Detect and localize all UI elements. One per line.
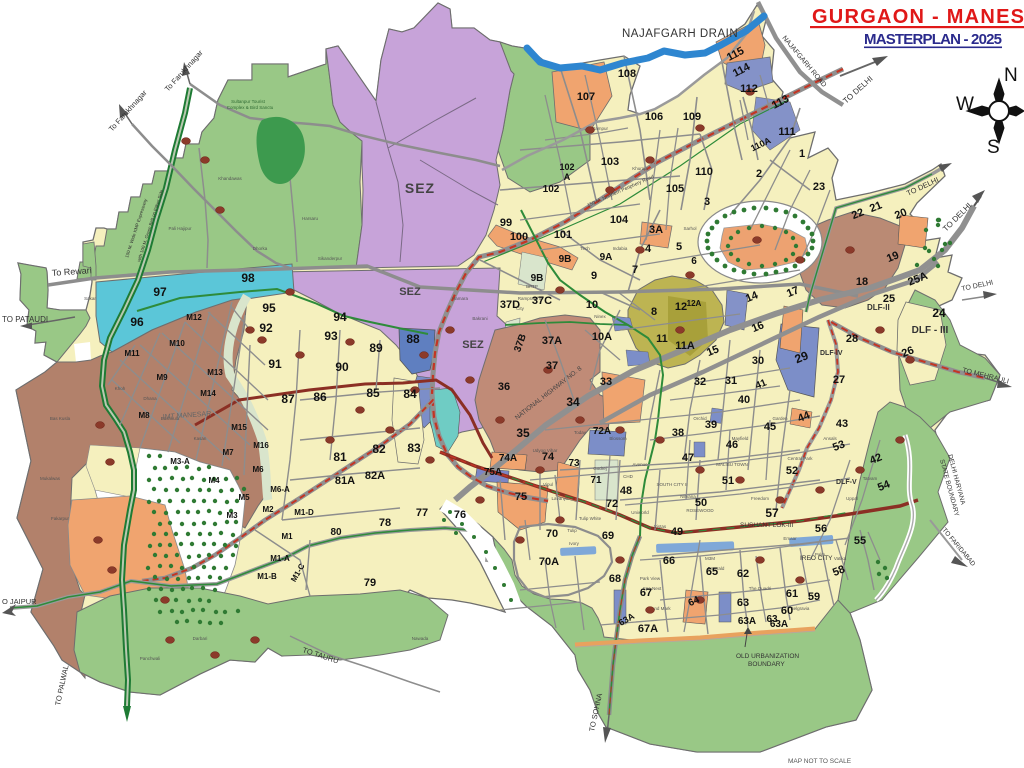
svg-text:M11: M11 [124, 349, 140, 358]
svg-text:8: 8 [651, 306, 657, 318]
svg-text:37A: 37A [542, 335, 562, 347]
svg-text:10A: 10A [592, 331, 612, 343]
svg-text:BPTP: BPTP [526, 284, 538, 289]
svg-text:M1-D: M1-D [294, 508, 314, 517]
svg-text:69: 69 [602, 530, 614, 542]
svg-text:23: 23 [813, 181, 825, 193]
svg-text:A: A [564, 172, 571, 182]
svg-text:M1-B: M1-B [257, 572, 277, 581]
svg-text:111: 111 [778, 126, 795, 138]
svg-text:Tulip: Tulip [567, 528, 577, 533]
svg-text:34: 34 [566, 395, 580, 409]
svg-text:M12: M12 [186, 313, 202, 322]
svg-text:38: 38 [672, 427, 684, 439]
svg-text:M6: M6 [252, 465, 264, 474]
svg-text:81: 81 [333, 450, 347, 464]
svg-text:68: 68 [609, 573, 621, 585]
svg-text:101: 101 [554, 229, 572, 241]
svg-text:48: 48 [620, 485, 632, 497]
svg-text:52: 52 [786, 465, 798, 477]
svg-text:5: 5 [676, 241, 682, 253]
svg-text:63: 63 [737, 597, 749, 609]
svg-text:M2: M2 [262, 505, 274, 514]
svg-text:N: N [1004, 65, 1018, 86]
svg-text:105: 105 [666, 183, 684, 195]
svg-text:Darbari: Darbari [193, 636, 208, 641]
svg-text:93: 93 [324, 329, 338, 343]
svg-text:Panchwali: Panchwali [140, 656, 161, 661]
svg-text:18: 18 [856, 276, 868, 288]
svg-text:Ivory: Ivory [569, 541, 580, 546]
svg-text:Lavanya: Lavanya [551, 496, 569, 501]
svg-text:51: 51 [722, 475, 734, 487]
svg-text:73: 73 [568, 458, 580, 469]
svg-text:77: 77 [416, 507, 428, 519]
svg-text:M3-A: M3-A [170, 457, 190, 466]
svg-text:M8: M8 [138, 411, 150, 420]
svg-text:Vipul: Vipul [543, 482, 553, 487]
svg-text:Vistas: Vistas [654, 524, 667, 529]
svg-text:SEZ: SEZ [399, 286, 421, 298]
svg-text:75: 75 [515, 491, 527, 503]
svg-text:1: 1 [799, 148, 805, 160]
svg-text:95: 95 [262, 301, 276, 315]
svg-text:DLF-II: DLF-II [867, 303, 890, 312]
svg-text:M5: M5 [238, 493, 250, 502]
svg-text:36: 36 [498, 381, 510, 393]
svg-text:24: 24 [932, 306, 946, 320]
svg-text:28: 28 [846, 333, 858, 345]
svg-text:Bakrani: Bakrani [472, 316, 487, 321]
svg-text:103: 103 [601, 156, 619, 168]
svg-text:Central Park: Central Park [787, 456, 813, 461]
svg-text:Khoh: Khoh [115, 386, 126, 391]
svg-text:9B: 9B [531, 273, 544, 284]
svg-text:CHD: CHD [623, 474, 633, 479]
svg-text:M4: M4 [208, 476, 220, 485]
svg-text:89: 89 [369, 341, 383, 355]
svg-text:100: 100 [510, 231, 528, 243]
svg-text:47: 47 [682, 452, 694, 464]
svg-text:Pali Hajipur: Pali Hajipur [168, 226, 192, 231]
svg-text:NAJAFGARH DRAIN: NAJAFGARH DRAIN [622, 28, 738, 40]
svg-text:56: 56 [815, 523, 827, 535]
svg-text:61: 61 [786, 588, 798, 600]
svg-text:SEZ: SEZ [405, 180, 435, 196]
svg-text:55: 55 [854, 535, 866, 547]
svg-text:82: 82 [372, 442, 386, 456]
svg-text:12: 12 [675, 301, 687, 313]
svg-text:Today: Today [574, 430, 587, 435]
svg-text:M6-A: M6-A [270, 485, 290, 494]
svg-text:DLF - III: DLF - III [912, 325, 949, 336]
svg-text:Belgravia: Belgravia [791, 606, 810, 611]
svg-text:12A: 12A [687, 299, 702, 308]
svg-text:49: 49 [671, 526, 683, 538]
svg-text:Dhorka: Dhorka [253, 246, 268, 251]
svg-text:Sakar: Sakar [84, 296, 96, 301]
svg-text:46: 46 [726, 439, 738, 451]
svg-text:3A: 3A [649, 224, 663, 236]
svg-text:DLF-IV: DLF-IV [820, 350, 843, 357]
svg-text:108: 108 [618, 68, 636, 80]
svg-text:MASTERPLAN - 2025: MASTERPLAN - 2025 [864, 31, 1002, 48]
svg-text:Sultanpur Tourist: Sultanpur Tourist [231, 99, 265, 104]
svg-text:27: 27 [833, 374, 845, 386]
svg-text:84: 84 [403, 387, 417, 401]
svg-text:BOUNDARY: BOUNDARY [748, 661, 785, 668]
svg-text:Indabia: Indabia [613, 246, 628, 251]
svg-text:81A: 81A [335, 475, 355, 487]
svg-text:MALIBU TOWN: MALIBU TOWN [716, 462, 748, 467]
svg-text:107: 107 [577, 91, 595, 103]
svg-text:60: 60 [781, 605, 793, 617]
svg-text:9B: 9B [559, 254, 572, 265]
svg-text:M1-A: M1-A [270, 554, 290, 563]
svg-text:9: 9 [591, 270, 597, 282]
svg-text:91: 91 [268, 357, 282, 371]
svg-text:Ninex: Ninex [594, 314, 606, 319]
svg-text:45: 45 [764, 421, 776, 433]
svg-text:7: 7 [632, 264, 638, 276]
svg-text:Nawada: Nawada [412, 636, 429, 641]
svg-text:Bas Kusla: Bas Kusla [50, 416, 71, 421]
svg-text:71: 71 [590, 475, 602, 486]
svg-text:Nirvana: Nirvana [680, 494, 696, 499]
svg-text:Avenue: Avenue [632, 462, 648, 467]
svg-text:Fakarpur: Fakarpur [51, 516, 70, 521]
svg-text:SUSHANT LOK-III: SUSHANT LOK-III [740, 522, 794, 529]
svg-text:31: 31 [725, 375, 737, 387]
svg-text:43: 43 [836, 418, 848, 430]
svg-text:M15: M15 [231, 423, 247, 432]
svg-text:Harsaru: Harsaru [302, 216, 319, 221]
svg-text:Khurala: Khurala [632, 166, 648, 171]
svg-text:99: 99 [500, 217, 512, 229]
svg-text:109: 109 [683, 111, 701, 123]
svg-text:70: 70 [546, 528, 558, 540]
svg-text:Godrej: Godrej [593, 466, 607, 471]
svg-text:63A: 63A [738, 616, 756, 627]
svg-text:32: 32 [694, 376, 706, 388]
svg-text:M7: M7 [222, 448, 234, 457]
svg-text:M10: M10 [169, 339, 185, 348]
svg-text:SEZ: SEZ [462, 339, 484, 351]
svg-text:Mukalwas: Mukalwas [40, 476, 61, 481]
svg-text:94: 94 [333, 310, 347, 324]
svg-text:40: 40 [738, 394, 750, 406]
svg-text:MAP NOT TO SCALE: MAP NOT TO SCALE [788, 758, 852, 765]
svg-text:74A: 74A [499, 453, 517, 464]
svg-text:30: 30 [752, 355, 764, 367]
svg-text:Sikanderpur: Sikanderpur [318, 256, 343, 261]
svg-text:62: 62 [737, 568, 749, 580]
svg-text:70A: 70A [539, 556, 559, 568]
svg-text:80: 80 [330, 527, 342, 538]
svg-text:78: 78 [379, 517, 391, 529]
svg-text:Complex & Bird Sanctu: Complex & Bird Sanctu [227, 105, 274, 110]
svg-text:85: 85 [366, 386, 380, 400]
svg-text:4: 4 [645, 243, 652, 255]
svg-text:Hamara: Hamara [452, 296, 469, 301]
svg-text:59: 59 [808, 591, 820, 603]
svg-text:102: 102 [543, 184, 560, 195]
svg-text:SOUTH CITY II: SOUTH CITY II [657, 482, 688, 487]
svg-text:Tatvam: Tatvam [863, 476, 878, 481]
svg-text:M14: M14 [200, 389, 216, 398]
svg-text:50: 50 [695, 497, 707, 509]
svg-text:M3M: M3M [705, 556, 715, 561]
svg-text:Park View: Park View [640, 576, 661, 581]
svg-text:11: 11 [656, 333, 668, 345]
svg-text:106: 106 [645, 111, 663, 123]
svg-text:Dhana: Dhana [143, 396, 157, 401]
svg-text:Kasan: Kasan [194, 436, 207, 441]
svg-text:Sarhol: Sarhol [683, 226, 696, 231]
svg-text:82A: 82A [365, 470, 385, 482]
svg-text:67: 67 [640, 587, 652, 599]
svg-text:The Quadri: The Quadri [749, 586, 772, 591]
svg-text:W: W [956, 94, 974, 115]
svg-text:37D: 37D [500, 299, 520, 311]
svg-text:96: 96 [130, 315, 144, 329]
svg-text:2: 2 [756, 168, 762, 180]
svg-text:86: 86 [313, 390, 327, 404]
svg-text:Tulip White: Tulip White [579, 516, 602, 521]
svg-text:Freedom: Freedom [751, 496, 769, 501]
svg-text:GURGAON - MANES: GURGAON - MANES [812, 6, 1024, 28]
svg-text:OLD URBANIZATION: OLD URBANIZATION [736, 653, 799, 660]
svg-text:Vatika: Vatika [834, 556, 847, 561]
svg-text:104: 104 [610, 214, 629, 226]
svg-text:72A: 72A [593, 426, 611, 437]
svg-text:TO PATAUDI: TO PATAUDI [2, 315, 48, 324]
svg-text:Emaar: Emaar [783, 536, 797, 541]
svg-text:92: 92 [259, 321, 273, 335]
svg-text:Blossom: Blossom [609, 436, 627, 441]
svg-text:75A: 75A [484, 467, 502, 478]
svg-text:Khandawas: Khandawas [218, 176, 242, 181]
svg-text:M13: M13 [207, 368, 223, 377]
svg-text:Uniworld: Uniworld [631, 510, 649, 515]
svg-text:90: 90 [335, 360, 349, 374]
svg-text:M1: M1 [281, 532, 293, 541]
svg-text:M9: M9 [156, 373, 168, 382]
svg-text:Tech: Tech [580, 246, 590, 251]
svg-text:88: 88 [406, 332, 420, 346]
svg-text:S: S [987, 137, 1000, 158]
svg-text:37C: 37C [532, 295, 552, 307]
svg-text:74: 74 [542, 451, 555, 463]
svg-text:O JAIPUR: O JAIPUR [2, 597, 37, 606]
svg-text:6: 6 [691, 256, 697, 267]
svg-text:65: 65 [706, 566, 718, 578]
svg-text:9A: 9A [600, 252, 613, 263]
svg-text:M3: M3 [226, 511, 238, 520]
svg-text:37: 37 [546, 360, 558, 372]
svg-text:IREO CITY: IREO CITY [800, 555, 833, 562]
svg-text:112: 112 [740, 83, 758, 95]
svg-text:110: 110 [695, 166, 713, 178]
svg-text:67A: 67A [638, 623, 658, 635]
svg-text:79: 79 [364, 577, 376, 589]
svg-text:66: 66 [663, 555, 675, 567]
svg-text:102: 102 [559, 162, 574, 172]
svg-text:72: 72 [606, 498, 618, 510]
svg-text:10: 10 [586, 299, 598, 311]
svg-text:76: 76 [454, 509, 466, 521]
svg-text:11A: 11A [675, 340, 695, 352]
svg-text:33: 33 [600, 376, 612, 388]
svg-text:83: 83 [407, 441, 421, 455]
svg-text:DLF-V: DLF-V [836, 479, 857, 486]
svg-text:3: 3 [704, 196, 710, 208]
svg-text:87: 87 [281, 392, 295, 406]
svg-text:97: 97 [153, 285, 167, 299]
svg-text:35: 35 [516, 426, 530, 440]
svg-text:63A: 63A [770, 619, 788, 630]
svg-text:Uppal: Uppal [846, 496, 858, 501]
svg-text:39: 39 [705, 419, 717, 431]
svg-text:57: 57 [765, 506, 779, 520]
svg-text:M16: M16 [253, 441, 269, 450]
svg-text:98: 98 [241, 271, 255, 285]
